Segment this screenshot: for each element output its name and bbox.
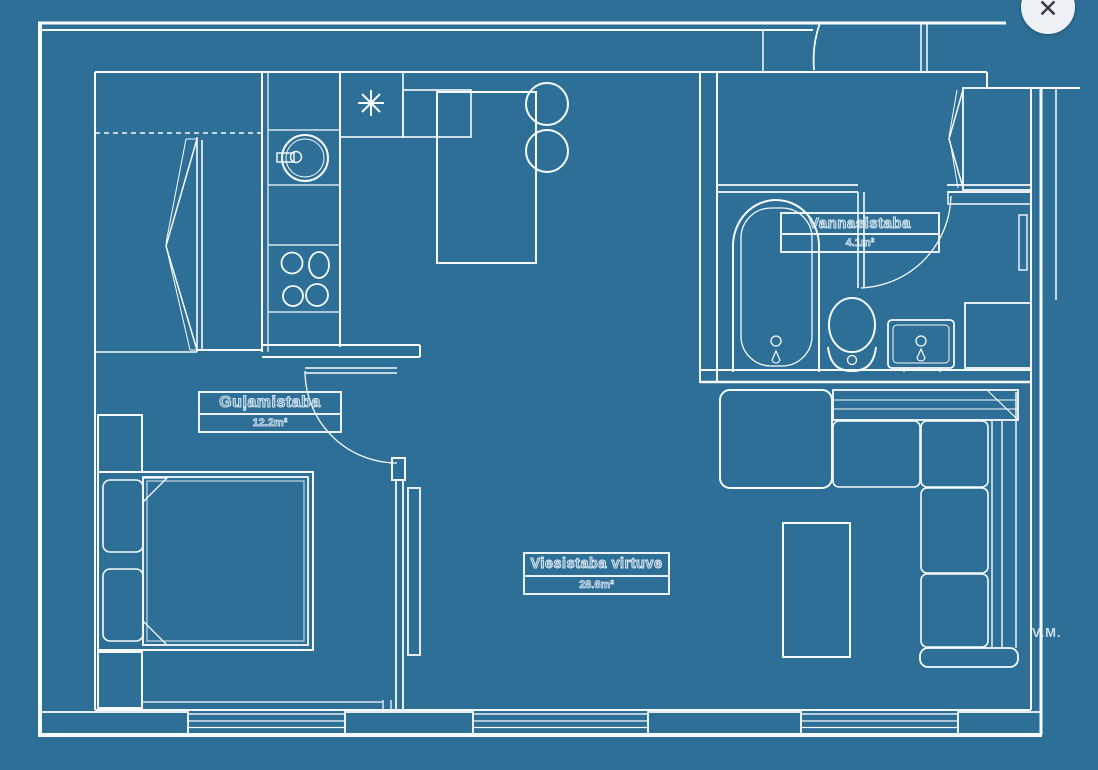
- sofa-chaise: [720, 390, 832, 488]
- wardrobe-left: [95, 137, 202, 352]
- floorplan-viewer: Vannasistaba 4.1m² Guļamistaba 12.2m² Vi…: [0, 0, 1098, 770]
- sofa-cushion: [921, 421, 988, 487]
- coffee-table: [783, 523, 850, 657]
- light-asterisk-icon: [358, 90, 384, 116]
- tv-panel: [408, 488, 420, 655]
- window: [801, 714, 958, 734]
- room-label-bedroom: Guļamistaba 12.2m²: [198, 391, 342, 433]
- room-name: Viesistaba virtuve: [525, 554, 668, 577]
- stool: [526, 83, 568, 125]
- sofa-back: [833, 390, 1018, 420]
- pillow: [103, 480, 143, 552]
- kitchen-counter: [95, 72, 471, 352]
- room-area: 12.2m²: [253, 417, 288, 429]
- walls: [38, 23, 1080, 736]
- hall-closet: [948, 88, 1031, 204]
- hob-burners-symbol: [282, 252, 330, 306]
- room-area: 28.6m²: [579, 579, 614, 591]
- windows: [40, 712, 1041, 735]
- room-name: Vannasistaba: [782, 214, 938, 235]
- close-icon: ✕: [1038, 0, 1059, 22]
- floor-plan-svg: [0, 0, 1098, 770]
- faucet: [916, 336, 926, 346]
- sofa-armrest: [920, 648, 1018, 667]
- bed-frame: [98, 472, 313, 650]
- bathroom-cabinet: [965, 303, 1031, 368]
- shelf: [948, 192, 1031, 204]
- bedroom-door-leaf: [305, 368, 397, 373]
- radiator: [1019, 215, 1027, 270]
- window: [473, 714, 648, 734]
- sofa-cushion: [921, 488, 988, 573]
- drafter-initials: V.M.: [1032, 625, 1062, 640]
- bed-blanket: [143, 477, 308, 645]
- nightstand: [98, 415, 142, 472]
- entry-door-leaf: [814, 23, 820, 70]
- room-area: 4.1m²: [846, 237, 875, 249]
- room-name: Guļamistaba: [200, 393, 340, 415]
- pillow: [103, 569, 143, 641]
- bar-table: [437, 83, 568, 263]
- sofa-cushion: [833, 421, 920, 487]
- stool: [526, 130, 568, 172]
- sofa-cushion: [921, 574, 988, 647]
- washing-machine-symbol: [277, 135, 328, 181]
- sofa: [720, 390, 1018, 667]
- window: [188, 714, 345, 734]
- room-label-living-kitchen: Viesistaba virtuve 28.6m²: [523, 552, 670, 595]
- toilet: [829, 298, 875, 352]
- nightstand: [98, 652, 142, 708]
- room-label-bathroom: Vannasistaba 4.1m²: [780, 212, 940, 253]
- bathtub-drain: [771, 336, 781, 346]
